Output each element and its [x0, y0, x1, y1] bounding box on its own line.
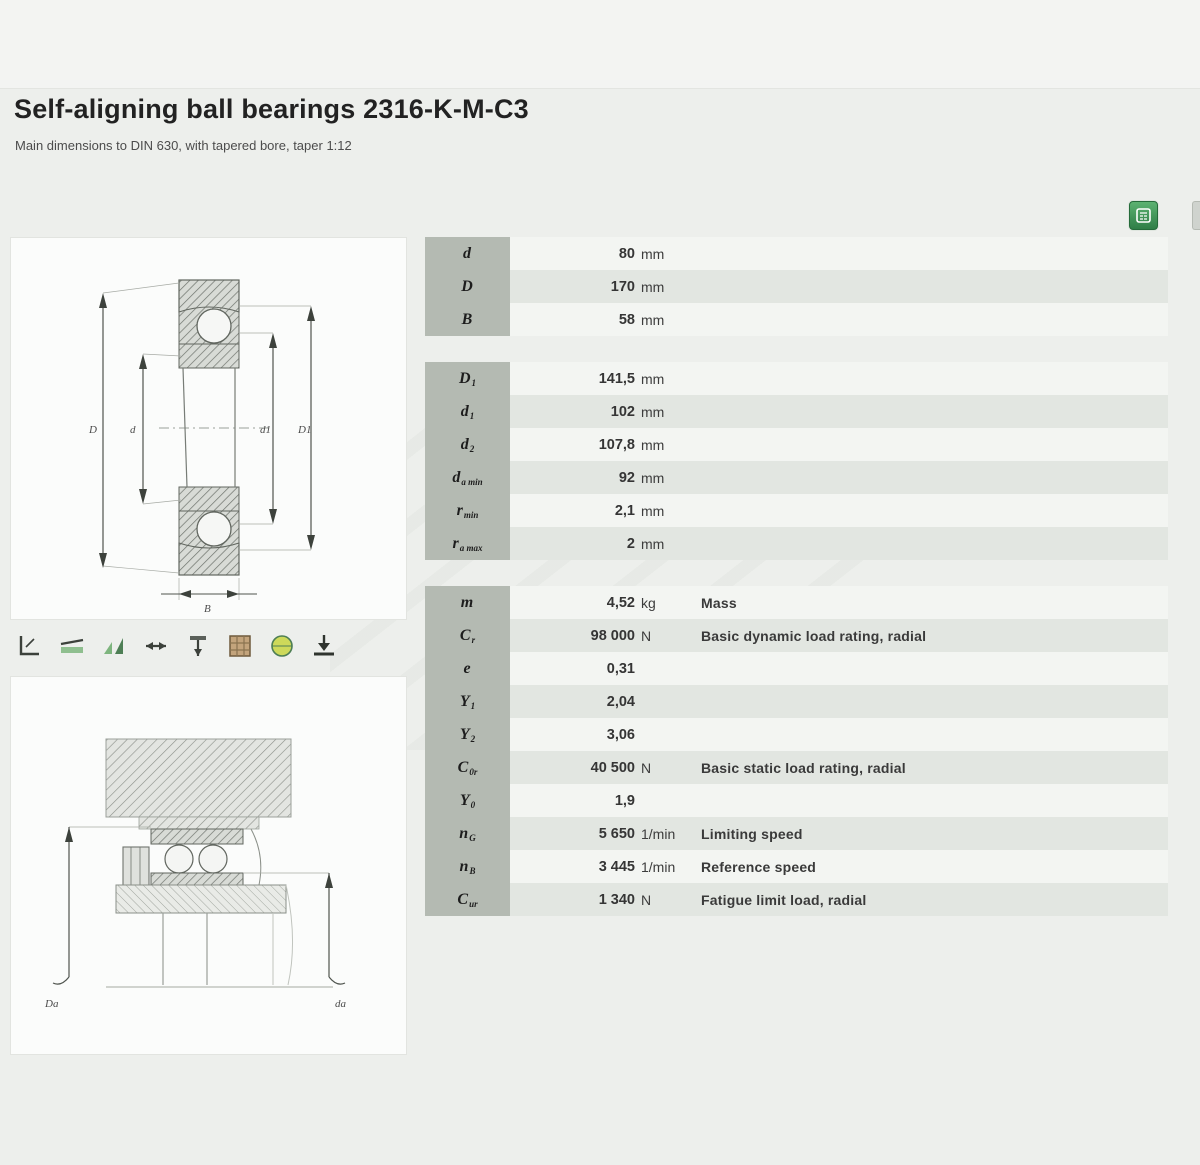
axial-load-icon: [140, 630, 172, 662]
unit: 1/min: [641, 826, 701, 842]
symbol-subscript: 0r: [469, 767, 477, 777]
symbol-cell: d: [425, 237, 510, 270]
description: Basic dynamic load rating, radial: [701, 628, 1168, 644]
symbol-subscript: ur: [469, 899, 478, 909]
table-row: nB3 4451/minReference speed: [425, 850, 1168, 883]
symbol: d: [452, 469, 460, 487]
unit: mm: [641, 470, 701, 486]
symbol: C: [458, 759, 469, 777]
symbol-cell: D: [425, 270, 510, 303]
table-row: d1102mm: [425, 395, 1168, 428]
globe-icon: [266, 630, 298, 662]
unit: N: [641, 892, 701, 908]
table-row: d80mm: [425, 237, 1168, 270]
symbol-cell: ra max: [425, 527, 510, 560]
unit: mm: [641, 312, 701, 328]
value: 170: [510, 279, 641, 295]
symbol-subscript: 0: [471, 800, 476, 810]
table-row: rmin2,1mm: [425, 494, 1168, 527]
unit: mm: [641, 246, 701, 262]
dim-label-Da: Da: [44, 998, 59, 1010]
cage-grid-icon: [224, 630, 256, 662]
angle-icon: [14, 630, 46, 662]
unit: mm: [641, 536, 701, 552]
value: 58: [510, 312, 641, 328]
symbol: C: [460, 627, 471, 645]
symbol-subscript: min: [464, 510, 479, 520]
unit: mm: [641, 437, 701, 453]
value: 107,8: [510, 437, 641, 453]
symbol-cell: nB: [425, 850, 510, 883]
description: Basic static load rating, radial: [701, 760, 1168, 776]
symbol-cell: nG: [425, 817, 510, 850]
symbol-subscript: 1: [471, 701, 476, 711]
symbol-cell: Y0: [425, 784, 510, 817]
symbol-cell: Y1: [425, 685, 510, 718]
symbol-cell: d2: [425, 428, 510, 461]
symbol: r: [457, 502, 463, 520]
value: 3,06: [510, 727, 641, 743]
mounting-drawing: Da da: [10, 676, 407, 1055]
symbol-cell: rmin: [425, 494, 510, 527]
symbol: d: [461, 403, 469, 421]
table-block: d80mmD170mmB58mm: [425, 237, 1168, 336]
symbol: B: [462, 311, 473, 329]
table-block: D1141,5mmd1102mmd2107,8mmda min92mmrmin2…: [425, 362, 1168, 560]
value: 1 340: [510, 892, 641, 908]
unit: mm: [641, 279, 701, 295]
description: Limiting speed: [701, 826, 1168, 842]
symbol-subscript: G: [469, 833, 476, 843]
value: 98 000: [510, 628, 641, 644]
symbol-subscript: 2: [470, 444, 475, 454]
table-row: Y12,04: [425, 685, 1168, 718]
value: 1,9: [510, 793, 641, 809]
table-row: Y01,9: [425, 784, 1168, 817]
value: 40 500: [510, 760, 641, 776]
symbol-cell: d1: [425, 395, 510, 428]
symbol-cell: Cr: [425, 619, 510, 652]
unit: mm: [641, 503, 701, 519]
description: Reference speed: [701, 859, 1168, 875]
symbol: m: [461, 594, 473, 612]
unit: mm: [641, 404, 701, 420]
table-row: nG5 6501/minLimiting speed: [425, 817, 1168, 850]
symbol: Y: [460, 693, 470, 711]
symbol: n: [460, 858, 469, 876]
dim-label-D: D: [88, 424, 97, 436]
symbol: d: [461, 436, 469, 454]
unit: 1/min: [641, 859, 701, 875]
dim-label-B: B: [204, 603, 211, 615]
symbol-cell: m: [425, 586, 510, 619]
symbol-cell: C0r: [425, 751, 510, 784]
bearing-section-drawing: D d d1 D1 B: [10, 237, 407, 620]
dim-label-d1: d1: [260, 424, 271, 436]
symbol-subscript: a min: [461, 477, 482, 487]
table-row: Cur1 340NFatigue limit load, radial: [425, 883, 1168, 916]
symbol: D: [461, 278, 473, 296]
symbol-cell: e: [425, 652, 510, 685]
symbol: C: [457, 891, 468, 909]
page-subtitle: Main dimensions to DIN 630, with tapered…: [15, 138, 352, 153]
table-row: D1141,5mm: [425, 362, 1168, 395]
symbol: d: [463, 245, 471, 263]
symbol-cell: da min: [425, 461, 510, 494]
dim-label-D1: D1: [297, 424, 311, 436]
symbol-cell: Cur: [425, 883, 510, 916]
table-row: e0,31: [425, 652, 1168, 685]
table-block: m4,52kgMassCr98 000NBasic dynamic load r…: [425, 586, 1168, 916]
header-band: [0, 0, 1200, 89]
alignment-icon: [56, 630, 88, 662]
value: 5 650: [510, 826, 641, 842]
table-row: D170mm: [425, 270, 1168, 303]
value: 80: [510, 246, 641, 262]
symbol-subscript: r: [472, 635, 476, 645]
side-panel-icon[interactable]: [1192, 201, 1200, 230]
value: 92: [510, 470, 641, 486]
symbol-subscript: 1: [470, 411, 475, 421]
symbol-subscript: a max: [460, 543, 483, 553]
radial-load-icon: [182, 630, 214, 662]
value: 2: [510, 536, 641, 552]
symbol: Y: [460, 792, 470, 810]
symbol: e: [463, 660, 470, 678]
unit: N: [641, 760, 701, 776]
symbol: D: [459, 370, 471, 388]
value: 0,31: [510, 661, 641, 677]
table-row: Cr98 000NBasic dynamic load rating, radi…: [425, 619, 1168, 652]
speed-icon: [98, 630, 130, 662]
symbol: Y: [460, 726, 470, 744]
unit: N: [641, 628, 701, 644]
table-row: m4,52kgMass: [425, 586, 1168, 619]
value: 141,5: [510, 371, 641, 387]
table-row: C0r40 500NBasic static load rating, radi…: [425, 751, 1168, 784]
symbol: r: [453, 535, 459, 553]
value: 2,1: [510, 503, 641, 519]
symbol-subscript: B: [469, 866, 475, 876]
dim-label-d: d: [130, 424, 136, 436]
symbol-subscript: 2: [471, 734, 476, 744]
symbol-cell: Y2: [425, 718, 510, 751]
value: 3 445: [510, 859, 641, 875]
unit: mm: [641, 371, 701, 387]
description: Fatigue limit load, radial: [701, 892, 1168, 908]
property-table: Dimensions d80mmD170mmB58mmD1141,5mmd110…: [425, 237, 1168, 942]
value: 102: [510, 404, 641, 420]
table-row: d2107,8mm: [425, 428, 1168, 461]
symbol: n: [459, 825, 468, 843]
description: Mass: [701, 595, 1168, 611]
value: 4,52: [510, 595, 641, 611]
feature-icon-row: [14, 624, 359, 668]
calculator-icon[interactable]: [1129, 201, 1158, 230]
symbol-cell: D1: [425, 362, 510, 395]
page-title: Self-aligning ball bearings 2316-K-M-C3: [14, 94, 529, 125]
table-row: ra max2mm: [425, 527, 1168, 560]
bearing-section-svg: D d d1 D1 B: [11, 238, 404, 617]
symbol-subscript: 1: [472, 378, 477, 388]
table-row: B58mm: [425, 303, 1168, 336]
table-row: Y23,06: [425, 718, 1168, 751]
symbol-cell: B: [425, 303, 510, 336]
value: 2,04: [510, 694, 641, 710]
unit: kg: [641, 595, 701, 611]
datasheet-page: Self-aligning ball bearings 2316-K-M-C3 …: [0, 0, 1200, 1165]
dim-label-da: da: [335, 998, 347, 1010]
mounting-svg: Da da: [11, 677, 404, 1052]
cad-download-icon: [308, 630, 340, 662]
table-row: da min92mm: [425, 461, 1168, 494]
